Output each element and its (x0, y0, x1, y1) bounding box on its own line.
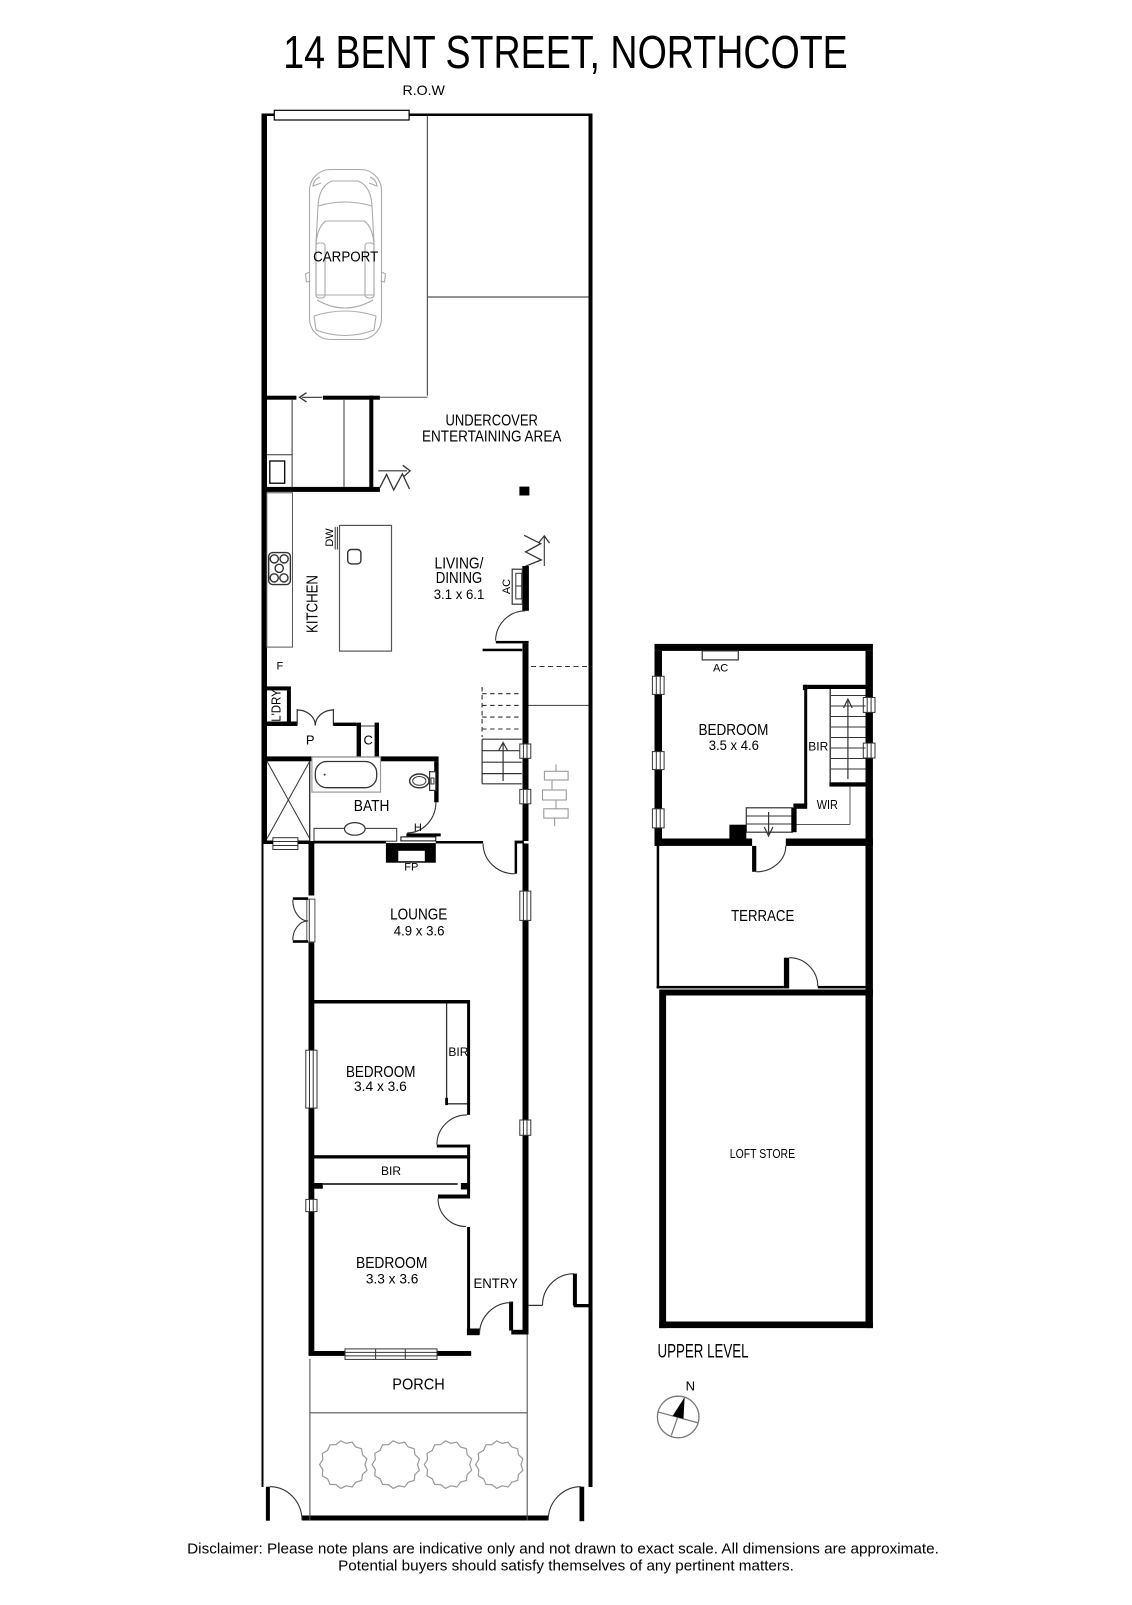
svg-text:ENTRY: ENTRY (474, 1275, 519, 1291)
svg-text:BATH: BATH (354, 798, 390, 815)
svg-text:LOFT STORE: LOFT STORE (730, 1146, 796, 1161)
svg-text:3.1 x 6.1: 3.1 x 6.1 (434, 586, 485, 602)
svg-text:F: F (277, 661, 284, 673)
svg-text:AC: AC (713, 663, 728, 675)
svg-text:Potential buyers should satisf: Potential buyers should satisfy themselv… (338, 1558, 794, 1575)
svg-text:AC: AC (501, 579, 513, 594)
svg-text:L'DRY: L'DRY (269, 689, 284, 722)
svg-text:KITCHEN: KITCHEN (305, 575, 322, 633)
svg-text:4.9 x 3.6: 4.9 x 3.6 (394, 922, 445, 938)
svg-text:H: H (414, 822, 422, 834)
svg-text:ENTERTAINING AREA: ENTERTAINING AREA (422, 429, 562, 446)
svg-text:TERRACE: TERRACE (731, 908, 794, 925)
svg-text:BIR: BIR (808, 740, 828, 754)
svg-text:FP: FP (404, 861, 418, 873)
svg-text:UNDERCOVER: UNDERCOVER (446, 413, 538, 430)
svg-text:N: N (686, 1379, 695, 1394)
svg-text:R.O.W: R.O.W (403, 82, 446, 98)
svg-text:PORCH: PORCH (392, 1377, 445, 1394)
svg-text:BIR: BIR (448, 1045, 468, 1059)
svg-text:14 BENT STREET, NORTHCOTE: 14 BENT STREET, NORTHCOTE (283, 26, 848, 78)
svg-text:BIR: BIR (381, 1164, 401, 1178)
svg-text:CARPORT: CARPORT (313, 249, 378, 266)
svg-text:3.4 x 3.6: 3.4 x 3.6 (354, 1078, 407, 1094)
svg-text:3.3 x 3.6: 3.3 x 3.6 (366, 1270, 419, 1286)
svg-text:WIR: WIR (817, 797, 838, 812)
svg-text:UPPER LEVEL: UPPER LEVEL (658, 1342, 749, 1363)
svg-text:3.5 x 4.6: 3.5 x 4.6 (709, 737, 759, 753)
svg-text:DW: DW (324, 528, 336, 547)
svg-text:LOUNGE: LOUNGE (390, 907, 447, 924)
svg-text:P: P (306, 733, 315, 748)
svg-text:DINING: DINING (436, 570, 483, 587)
svg-text:Disclaimer: Please note plans: Disclaimer: Please note plans are indica… (187, 1541, 939, 1558)
svg-text:C: C (364, 733, 373, 748)
